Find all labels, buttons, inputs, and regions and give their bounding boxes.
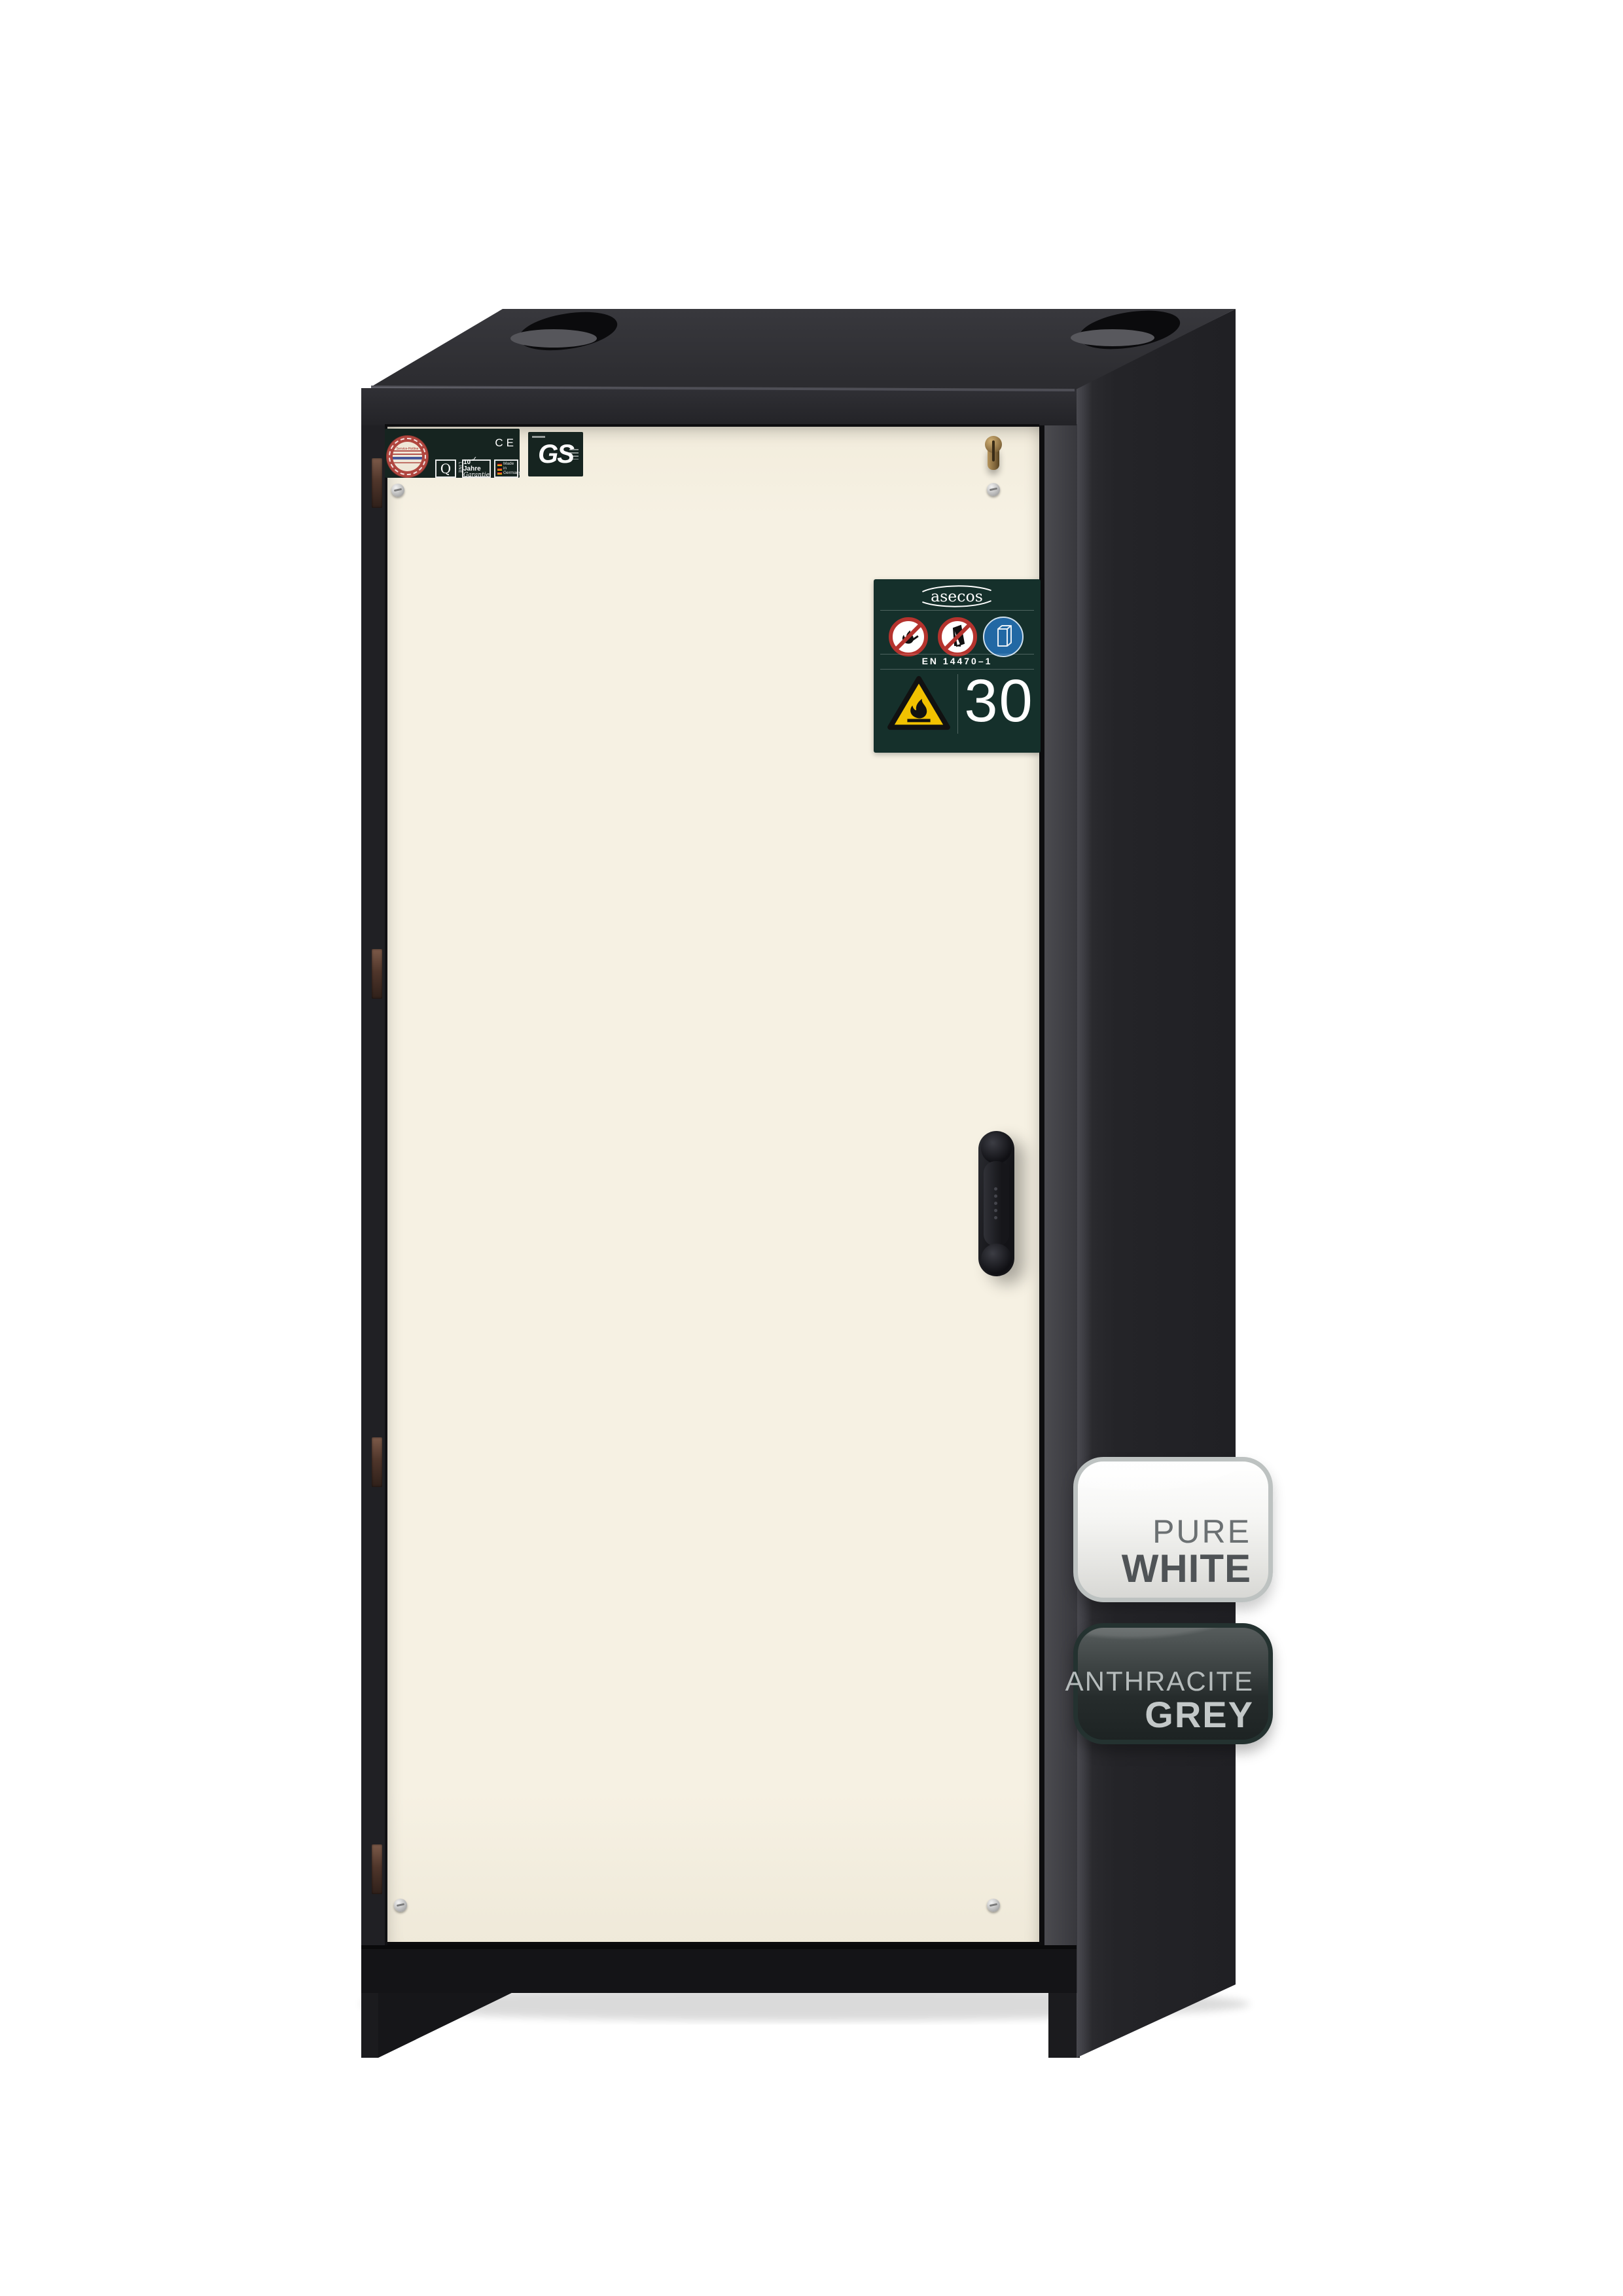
german-flag-icon [497,463,502,466]
swatch-anthracite-grey: ANTHRACITE GREY [1073,1623,1273,1744]
keyhole-icon [992,440,995,461]
fire-rating-value: 30 [959,671,1039,731]
cabinet-left-foot [361,1990,378,2058]
swatch-label-line1: ANTHRACITE [1065,1668,1254,1696]
product-image: Service-Hotline Q LINE ✓ 10 Jahre Garant… [0,0,1623,2296]
door-hinge [372,458,382,508]
cabinet-base-band [361,1945,1077,1993]
svg-text:asecos: asecos [931,587,983,605]
no-open-flames-icon [889,617,928,656]
cabinet-door: Service-Hotline Q LINE ✓ 10 Jahre Garant… [385,424,1039,1945]
q-line-mark: Q [435,459,456,478]
ce-mark: CE [495,437,517,450]
q-line-sub: LINE [457,462,461,473]
swatch-label-line2: GREY [1065,1696,1254,1733]
door-hinge [372,949,382,999]
door-handle [978,1131,1014,1276]
german-flag-icon [497,467,502,471]
made-in-germany-mark: Made in Germany [494,459,518,478]
cabinet-side-panel [1077,309,1236,2058]
swatch-pure-white: PURE WHITE [1073,1457,1273,1602]
door-hinge [372,1844,382,1894]
gs-mark: GS [528,432,583,476]
cabinet-right-foot [1048,1990,1080,2058]
key-lock [985,436,1002,470]
cabinet-front-edge-strip [1044,424,1077,1993]
quality-seal-icon: Service-Hotline [387,436,428,477]
cabinet-top-front-band [361,388,1077,425]
keep-cabinet-closed-icon [982,616,1024,658]
door-screw [987,483,1000,496]
asecos-logo: asecos [908,583,1006,609]
swatch-label-line2: WHITE [1122,1549,1251,1588]
cabinet-base-lip [361,1945,1077,1949]
door-hinge [372,1437,382,1487]
no-open-door-icon [938,617,977,656]
seal-text: Service-Hotline [393,447,422,451]
flammable-warning-icon [885,674,953,732]
type-plate: asecos EN 14470–1 [874,579,1041,753]
door-screw [391,484,404,497]
certification-label: Service-Hotline Q LINE ✓ 10 Jahre Garant… [385,429,520,478]
swatch-label-line1: PURE [1122,1515,1251,1549]
standard-text: EN 14470–1 [874,656,1041,666]
german-flag-icon [497,471,502,475]
door-screw [394,1899,407,1912]
warranty-mark: 10 Jahre Garantie [462,459,491,478]
door-screw [987,1899,1000,1912]
